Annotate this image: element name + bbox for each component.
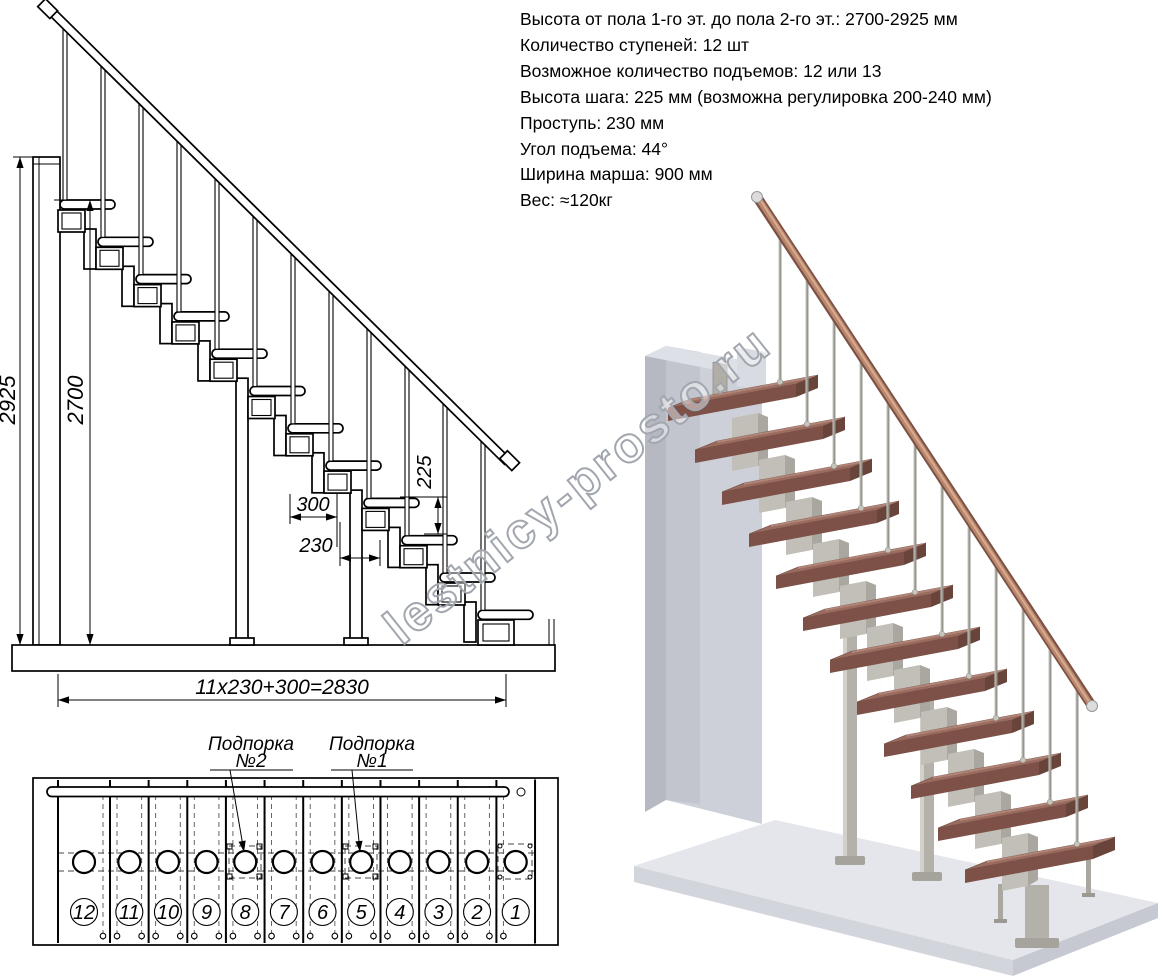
plan-step-number: 2	[471, 902, 483, 924]
support2-label-number: №2	[235, 751, 267, 772]
dim-total-height: 2925	[0, 375, 20, 426]
plan-step-number: 1	[510, 902, 521, 924]
plan-step-number: 8	[240, 902, 251, 924]
plan-step-number: 6	[317, 902, 329, 924]
plan-step-number: 7	[278, 902, 290, 924]
plan-view-drawing: 121110987654321	[33, 734, 558, 945]
elevation-floor	[12, 645, 555, 671]
elevation-step1-pedestal	[478, 619, 554, 645]
plan-step-number: 4	[394, 902, 405, 924]
dim-total-run: 11x230+300=2830	[195, 676, 369, 699]
dim-top-step-depth: 300	[296, 494, 329, 516]
staircase-drawing-page: Высота от пола 1-го эт. до пола 2-го эт.…	[0, 0, 1166, 977]
drawing-canvas: 2925 2700 300 230 225 11x230+	[0, 0, 1166, 977]
elevation-wall	[33, 157, 60, 645]
handrail-bottom-cap	[1087, 701, 1098, 712]
dim-tread-depth: 230	[298, 535, 332, 557]
plan-step-number: 12	[73, 902, 95, 924]
dim-floor-to-floor: 2700	[63, 375, 88, 426]
plan-step-number: 11	[119, 902, 140, 924]
staircase-3d-render	[634, 192, 1158, 977]
plan-steps: 121110987654321	[58, 778, 535, 945]
plan-handrail	[47, 787, 525, 797]
plan-step-number: 5	[356, 902, 368, 924]
elevation-handrail	[38, 0, 520, 471]
plan-step-number: 3	[433, 902, 444, 924]
plan-step-number: 9	[201, 902, 212, 924]
support1-label-number: №1	[356, 751, 387, 772]
dim-step-rise: 225	[414, 454, 436, 489]
handrail-3d	[752, 192, 1098, 712]
plan-step-number: 10	[157, 902, 179, 924]
handrail-top-cap	[752, 192, 763, 203]
